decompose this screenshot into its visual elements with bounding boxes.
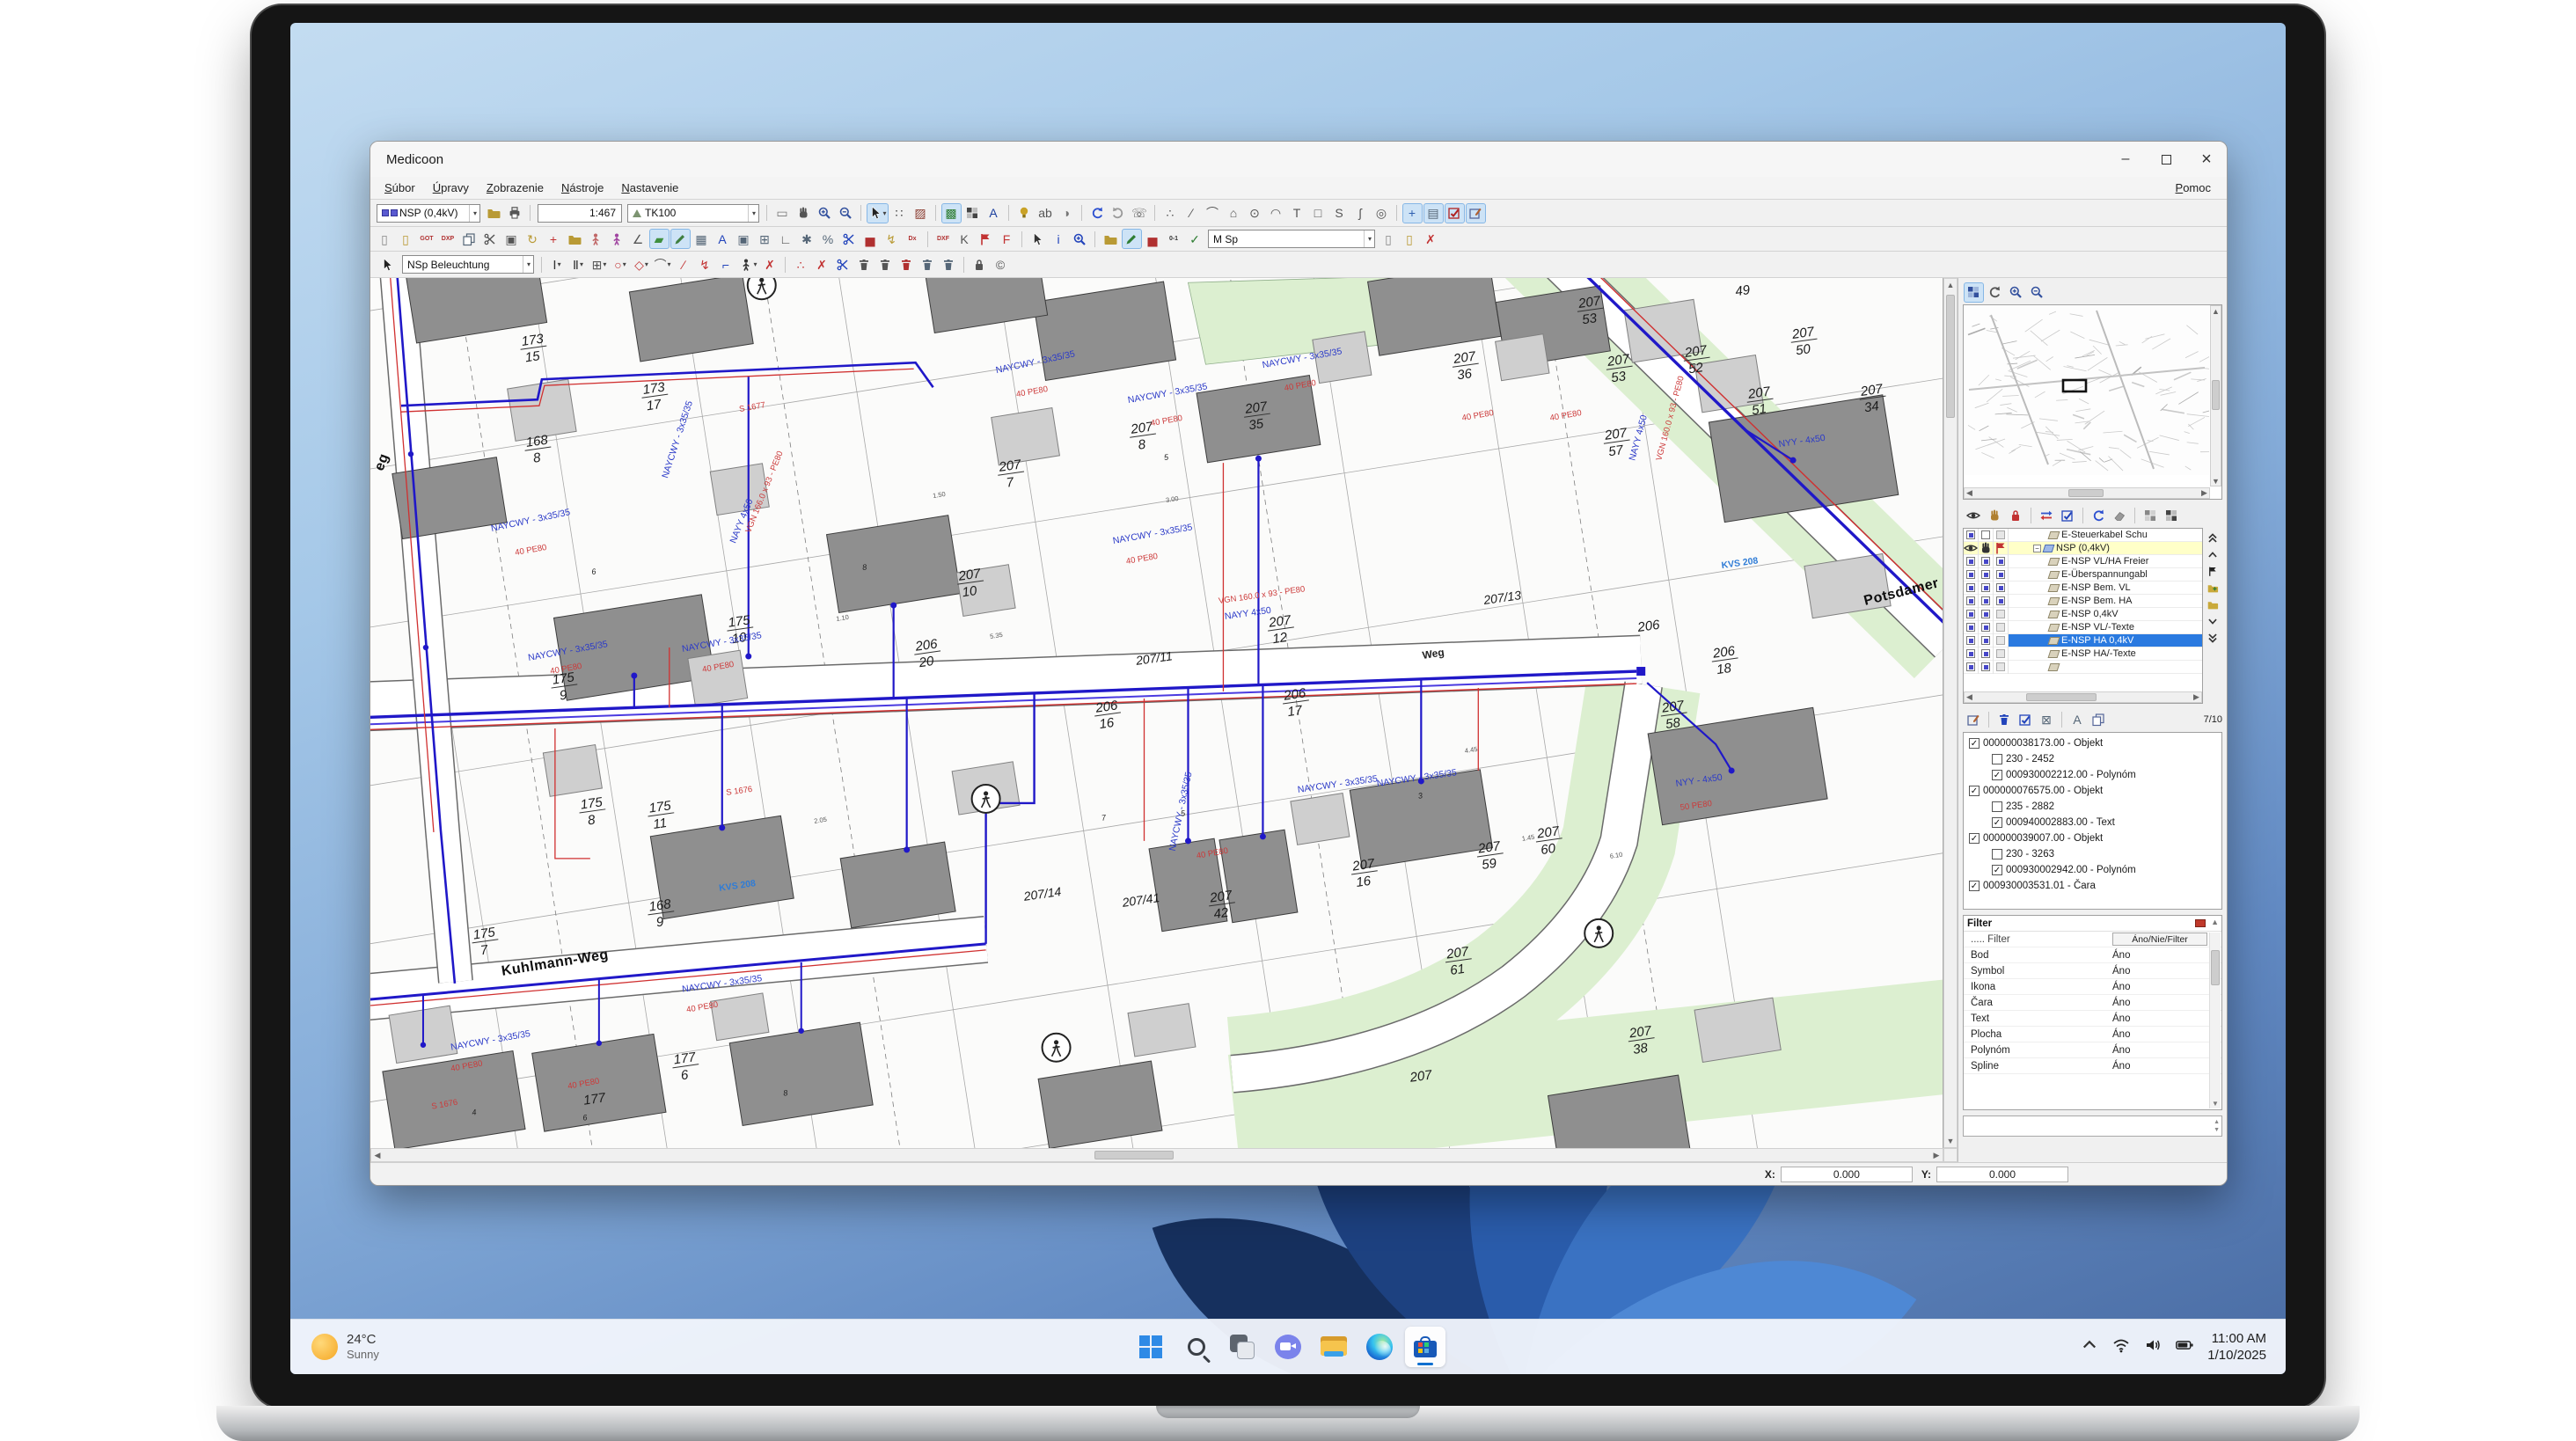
green-pen-icon[interactable] bbox=[1122, 229, 1142, 249]
props-icon[interactable] bbox=[1466, 203, 1486, 223]
unchecked-checkbox[interactable] bbox=[1992, 801, 2002, 812]
cut2-icon[interactable] bbox=[833, 254, 853, 274]
object-row[interactable]: 235 - 2882 bbox=[1965, 799, 2220, 815]
panel-footer-field[interactable]: ▲ ▼ bbox=[1963, 1115, 2222, 1137]
call-icon[interactable]: ☏ bbox=[1130, 203, 1150, 223]
layer-checkbox[interactable] bbox=[1996, 610, 2005, 618]
copyright-icon[interactable]: © bbox=[991, 254, 1011, 274]
filter-scroll-up-icon[interactable]: ▲ bbox=[2211, 918, 2219, 926]
layer-row-e-nsp-ha-0-4kv[interactable]: E-NSP HA 0,4kV bbox=[1964, 634, 2202, 647]
layer-checkbox[interactable] bbox=[1966, 636, 1975, 645]
cabinet-icon[interactable]: ⊞▾ bbox=[589, 254, 610, 274]
wifi-icon[interactable] bbox=[2112, 1336, 2130, 1358]
spinner-up-icon[interactable]: ▲ bbox=[2214, 1119, 2220, 1125]
overview-zoom-out-icon[interactable] bbox=[2027, 282, 2047, 303]
svg-text:53: 53 bbox=[1581, 311, 1599, 327]
voltage-level-select[interactable]: NSP (0,4kV)▾ bbox=[377, 204, 480, 223]
object-row[interactable]: ✓000000076575.00 - Objekt bbox=[1965, 783, 2220, 799]
menu-súbor[interactable]: Súbor bbox=[376, 179, 424, 196]
checked-checkbox[interactable]: ✓ bbox=[1969, 738, 1980, 749]
svg-text:42: 42 bbox=[1212, 905, 1230, 922]
text-blue-icon[interactable]: A bbox=[713, 229, 733, 249]
layer-checkbox[interactable] bbox=[1996, 557, 2005, 566]
pedestrian-symbol bbox=[748, 278, 776, 299]
object-row[interactable]: ✓000000039007.00 - Objekt bbox=[1965, 830, 2220, 846]
object-toolbar: ⊠A7/10 bbox=[1963, 709, 2222, 730]
new-sheet-icon[interactable]: ▯ bbox=[375, 229, 395, 249]
pan-icon[interactable] bbox=[794, 203, 814, 223]
battery-icon[interactable] bbox=[2176, 1336, 2193, 1358]
info-icon[interactable]: i bbox=[1049, 229, 1069, 249]
layer-lock-icon[interactable] bbox=[2006, 506, 2026, 526]
object-list: ✓000000038173.00 - Objekt230 - 2452✓0009… bbox=[1963, 732, 2222, 910]
maximize-button[interactable] bbox=[2146, 142, 2186, 177]
toolbar-separator bbox=[2134, 508, 2135, 523]
angle-icon[interactable]: ∠ bbox=[628, 229, 648, 249]
zoom-in-icon[interactable] bbox=[815, 203, 835, 223]
svg-text:60: 60 bbox=[1540, 841, 1557, 858]
checked-checkbox[interactable]: ✓ bbox=[1992, 770, 2002, 780]
layer-nav-flag-icon[interactable] bbox=[2205, 564, 2221, 579]
arc2-icon[interactable]: ⌒▾ bbox=[653, 254, 673, 274]
overview-toolbar bbox=[1963, 282, 2222, 303]
layer-checkbox[interactable] bbox=[1966, 557, 1975, 566]
layer-nav-strip bbox=[2203, 528, 2222, 704]
layer-nav-chev2up-icon[interactable] bbox=[2205, 530, 2221, 545]
layer-row-e-berspannungabl[interactable]: E-Überspannungabl bbox=[1964, 568, 2202, 582]
filter-close-icon[interactable] bbox=[2195, 919, 2206, 927]
toolbar-symbols: NSp Beleuchtung▾Ⅰ▾Ⅱ▾⊞▾○▾◇▾⌒▾∕↯⌐▾✗∴✗© bbox=[370, 252, 2227, 278]
red-line-icon[interactable]: ∕ bbox=[674, 254, 694, 274]
layer-row-nsp-0-4kv-[interactable]: −NSP (0,4kV) bbox=[1964, 542, 2202, 555]
tray-time: 11:00 AM bbox=[2207, 1330, 2266, 1348]
layer-undo-icon[interactable] bbox=[2089, 506, 2109, 526]
svg-text:36: 36 bbox=[1456, 366, 1474, 383]
layer-grid-b-icon[interactable] bbox=[2162, 506, 2182, 526]
object-row[interactable]: ✓000940002883.00 - Text bbox=[1965, 815, 2220, 830]
hatch-icon[interactable]: ▦ bbox=[692, 229, 712, 249]
toolbar-separator bbox=[530, 205, 531, 221]
map-hscrollbar[interactable]: ◀ ▶ bbox=[370, 1148, 1943, 1162]
clock[interactable]: 11:00 AM 1/10/2025 bbox=[2207, 1330, 2266, 1364]
spinner-down-icon[interactable]: ▼ bbox=[2214, 1127, 2220, 1133]
image-icon[interactable]: ▣ bbox=[734, 229, 754, 249]
toolbar-separator bbox=[1021, 231, 1022, 247]
filter-toggle-button[interactable]: Áno/Nie/Filter bbox=[2112, 933, 2207, 946]
layer-checkbox[interactable] bbox=[1966, 623, 1975, 632]
object-row[interactable]: 230 - 2452 bbox=[1965, 751, 2220, 767]
weather-desc: Sunny bbox=[347, 1348, 379, 1362]
title-bar[interactable]: Medicoon – × bbox=[370, 142, 2227, 177]
got-export-icon[interactable]: GOT bbox=[417, 229, 437, 249]
layer-checkbox[interactable] bbox=[1966, 570, 1975, 579]
export-icon[interactable] bbox=[565, 229, 585, 249]
y-coordinate-field[interactable]: 0.000 bbox=[1936, 1167, 2068, 1182]
taskbar-chat-icon[interactable] bbox=[1268, 1327, 1308, 1367]
overview-route-icon[interactable] bbox=[1985, 282, 2005, 303]
recycle-icon[interactable]: ↻ bbox=[523, 229, 543, 249]
layer-checkbox[interactable] bbox=[1981, 649, 1990, 658]
select-cursor-icon[interactable]: ▾ bbox=[867, 203, 889, 223]
map-vscrollbar[interactable]: ▲ ▼ bbox=[1943, 278, 1958, 1148]
svg-text:50: 50 bbox=[1795, 341, 1812, 358]
line-icon[interactable]: ∕ bbox=[1182, 203, 1202, 223]
svg-text:10: 10 bbox=[962, 583, 979, 600]
copy-icon[interactable] bbox=[459, 229, 479, 249]
layer-checkbox[interactable] bbox=[1981, 662, 1990, 671]
red-x-icon[interactable]: ✗ bbox=[812, 254, 832, 274]
layer-checkbox[interactable] bbox=[1996, 636, 2005, 645]
toolbar-separator bbox=[785, 257, 786, 273]
overview-vscroll[interactable]: ▲ ▼ bbox=[2210, 305, 2221, 486]
svg-text:34: 34 bbox=[1863, 399, 1880, 415]
overview-map[interactable]: ▲ ▼ ◀ ▶ bbox=[1963, 304, 2222, 500]
toolbar-separator bbox=[1154, 205, 1155, 221]
filter-row-text[interactable]: TextÁno bbox=[1964, 1011, 2221, 1027]
red-diamond-icon[interactable]: ◇▾ bbox=[632, 254, 652, 274]
person2-icon[interactable] bbox=[607, 229, 627, 249]
dxf-chip-icon[interactable]: DXF bbox=[933, 229, 954, 249]
taskbar-start-icon[interactable] bbox=[1131, 1327, 1171, 1367]
layer-swap-icon[interactable] bbox=[2037, 506, 2057, 526]
scurve-icon[interactable]: S bbox=[1329, 203, 1350, 223]
chart2-icon[interactable]: ▅ bbox=[1143, 229, 1163, 249]
window-title: Medicoon bbox=[370, 152, 443, 167]
system-tray: 11:00 AM 1/10/2025 bbox=[2081, 1330, 2266, 1364]
f-icon[interactable]: F bbox=[997, 229, 1017, 249]
blue-elbow-icon[interactable]: ⌐ bbox=[716, 254, 736, 274]
laptop-base-notch bbox=[1156, 1406, 1420, 1418]
filter-row-polynóm[interactable]: PolynómÁno bbox=[1964, 1042, 2221, 1058]
side-panel: ▲ ▼ ◀ ▶ E-Steuerkabel Schu−NSP (0,4kV)E-… bbox=[1958, 278, 2227, 1162]
percent-icon[interactable]: % bbox=[818, 229, 838, 249]
tree-hscroll[interactable]: ◀ ▶ bbox=[1964, 691, 2202, 703]
layer-checkbox[interactable] bbox=[1981, 557, 1990, 566]
background-map-select[interactable]: TK100▾ bbox=[627, 204, 759, 223]
object-row[interactable]: ✓000930002212.00 - Polynóm bbox=[1965, 767, 2220, 783]
menu-nastavenie[interactable]: Nastavenie bbox=[612, 179, 687, 196]
layer-checkbox[interactable] bbox=[1996, 649, 2005, 658]
layer-checkbox[interactable] bbox=[1981, 530, 1990, 539]
cut-icon[interactable] bbox=[480, 229, 501, 249]
pen-icon[interactable] bbox=[670, 229, 691, 249]
layer-row-e-steuerkabel-schu[interactable]: E-Steuerkabel Schu bbox=[1964, 529, 2202, 542]
filter-header: ..... Filter Áno/Nie/Filter bbox=[1964, 932, 2221, 947]
zoom-out-icon[interactable] bbox=[836, 203, 856, 223]
filter-panel: Filter ▲ ..... Filter Áno/Nie/Filter Bod… bbox=[1963, 915, 2222, 1110]
menu-pomoc[interactable]: Pomoc bbox=[2165, 179, 2221, 196]
spline-icon[interactable]: ʃ bbox=[1350, 203, 1371, 223]
layer-checkbox[interactable] bbox=[1996, 570, 2005, 579]
object-sort-icon[interactable]: A bbox=[2067, 710, 2088, 730]
layer-checkbox[interactable] bbox=[1981, 636, 1990, 645]
trash-grid-icon[interactable] bbox=[896, 254, 917, 274]
layer-checkbox[interactable] bbox=[1996, 596, 2005, 605]
object-delete-icon[interactable] bbox=[1994, 710, 2015, 730]
layer-checkbox[interactable] bbox=[1966, 583, 1975, 592]
object-deselect-icon[interactable]: ⊠ bbox=[2037, 710, 2057, 730]
layer-checkbox[interactable] bbox=[1996, 662, 2005, 671]
toolbar-separator bbox=[2031, 508, 2031, 523]
polygon-icon[interactable]: ⌂ bbox=[1224, 203, 1244, 223]
layer-checkbox[interactable] bbox=[1996, 623, 2005, 632]
layer-grid-a-icon[interactable] bbox=[2141, 506, 2161, 526]
undo-icon[interactable] bbox=[1087, 203, 1108, 223]
filter-row-čara[interactable]: ČaraÁno bbox=[1964, 995, 2221, 1011]
toolbar-separator bbox=[1094, 231, 1095, 247]
abs-icon[interactable]: ab bbox=[1036, 203, 1056, 223]
light-icon[interactable] bbox=[1014, 203, 1035, 223]
gear-icon[interactable]: ✱ bbox=[797, 229, 817, 249]
toolbar-separator bbox=[541, 257, 542, 273]
select-points-icon[interactable]: ∷ bbox=[889, 203, 910, 223]
layer-colors-icon[interactable]: ▩ bbox=[941, 203, 962, 223]
filter-row-bod[interactable]: BodÁno bbox=[1964, 947, 2221, 963]
svg-text:53: 53 bbox=[1610, 369, 1628, 385]
paste-icon[interactable]: ▣ bbox=[501, 229, 522, 249]
layer-visibility-icon[interactable] bbox=[1964, 506, 1984, 526]
chart-icon[interactable]: ▅ bbox=[860, 229, 881, 249]
sheet-b-icon[interactable]: ▯ bbox=[1400, 229, 1420, 249]
verify-icon[interactable] bbox=[1445, 203, 1465, 223]
trash-box-icon[interactable] bbox=[918, 254, 938, 274]
layer-checkbox[interactable] bbox=[1966, 662, 1975, 671]
layer-row-e-nsp-vl-texte[interactable]: E-NSP VL/-Texte bbox=[1964, 621, 2202, 634]
layer-checkbox[interactable] bbox=[1966, 610, 1975, 618]
toolbar-separator bbox=[1396, 205, 1397, 221]
layer-checkbox[interactable] bbox=[1981, 596, 1990, 605]
toolbar-main: NSP (0,4kV)▾1:467TK100▾▭▾∷▨▩Aab◑☏∴∕⌒⌂⊙◠T… bbox=[370, 200, 2227, 227]
object-row[interactable]: ✓000000038173.00 - Objekt bbox=[1965, 735, 2220, 751]
object-row[interactable]: 230 - 3263 bbox=[1965, 846, 2220, 862]
taskbar-file-explorer-icon[interactable] bbox=[1314, 1327, 1354, 1367]
checked-checkbox[interactable]: ✓ bbox=[1992, 817, 2002, 828]
svg-text:17: 17 bbox=[646, 397, 663, 413]
overview-pages-icon[interactable] bbox=[1964, 282, 1984, 303]
flag-icon[interactable] bbox=[976, 229, 996, 249]
new-view-icon[interactable]: ▭ bbox=[772, 203, 793, 223]
scale-input[interactable]: 1:467 bbox=[538, 204, 622, 223]
checked-checkbox[interactable]: ✓ bbox=[1969, 786, 1980, 796]
k-icon[interactable]: K bbox=[955, 229, 975, 249]
red-zigzag-icon[interactable]: ↯ bbox=[695, 254, 715, 274]
zero-one-icon[interactable]: 0-1 bbox=[1164, 229, 1184, 249]
layer-row-e-nsp-bem-ha[interactable]: E-NSP Bem. HA bbox=[1964, 595, 2202, 608]
svg-text:38: 38 bbox=[1632, 1041, 1650, 1057]
fill-icon[interactable]: ▰ bbox=[649, 229, 670, 249]
arc-icon[interactable]: ◠ bbox=[1266, 203, 1286, 223]
pole2-icon[interactable]: Ⅱ▾ bbox=[568, 254, 589, 274]
snip-icon[interactable] bbox=[839, 229, 860, 249]
layer-checkbox[interactable] bbox=[1966, 649, 1975, 658]
filter-row-spline[interactable]: SplineÁno bbox=[1964, 1058, 2221, 1074]
layer-nav-chev2down-icon[interactable] bbox=[2205, 631, 2221, 646]
toolbar-separator bbox=[860, 205, 861, 221]
unchecked-checkbox[interactable] bbox=[1992, 849, 2002, 859]
taskbar-apps bbox=[1131, 1327, 1445, 1367]
svg-text:52: 52 bbox=[1687, 360, 1705, 377]
red-circle-icon[interactable]: ○▾ bbox=[611, 254, 631, 274]
redo-icon[interactable] bbox=[1109, 203, 1129, 223]
layer-toolbar bbox=[1963, 505, 2222, 526]
layer-row-e-nsp-ha-texte[interactable]: E-NSP HA/-Texte bbox=[1964, 647, 2202, 661]
checked-checkbox[interactable]: ✓ bbox=[1969, 833, 1980, 844]
svg-text:59: 59 bbox=[1481, 856, 1498, 873]
layer-row-e-nsp-0-4kv[interactable]: E-NSP 0,4kV bbox=[1964, 608, 2202, 621]
svg-text:57: 57 bbox=[1607, 443, 1625, 459]
pole-icon[interactable]: Ⅰ▾ bbox=[547, 254, 567, 274]
folder2-icon[interactable] bbox=[1101, 229, 1121, 249]
symbol-group-select[interactable]: NSp Beleuchtung▾ bbox=[402, 255, 534, 274]
lock-icon[interactable] bbox=[970, 254, 990, 274]
person-icon[interactable] bbox=[586, 229, 606, 249]
table-icon[interactable]: ⊞ bbox=[755, 229, 775, 249]
object-copy-icon[interactable] bbox=[2089, 710, 2109, 730]
taskbar-edge-icon[interactable] bbox=[1359, 1327, 1400, 1367]
toolbar-separator bbox=[1081, 205, 1082, 221]
pick-icon[interactable] bbox=[1028, 229, 1048, 249]
text-icon[interactable]: T bbox=[1287, 203, 1307, 223]
map-canvas[interactable]: 1731517317168817510175917571689175817511… bbox=[370, 278, 1943, 1150]
layer-checkbox[interactable] bbox=[1981, 623, 1990, 632]
checked-checkbox[interactable]: ✓ bbox=[1992, 865, 2002, 875]
toolbar-separator bbox=[1008, 205, 1009, 221]
layer-checkbox[interactable] bbox=[1996, 530, 2005, 539]
menu-zobrazenie[interactable]: Zobrazenie bbox=[478, 179, 553, 196]
polyline-icon[interactable]: ⌒ bbox=[1203, 203, 1223, 223]
pedestrian-symbol bbox=[1584, 919, 1613, 947]
toolbar-separator bbox=[927, 231, 928, 247]
text-display-icon[interactable]: A bbox=[984, 203, 1004, 223]
svg-text:12: 12 bbox=[1271, 630, 1289, 647]
measure-icon[interactable]: ∟ bbox=[776, 229, 796, 249]
layer-row-e-nsp-vl-ha-freier[interactable]: E-NSP VL/HA Freier bbox=[1964, 555, 2202, 568]
layer-checkbox[interactable] bbox=[1981, 583, 1990, 592]
trash-box2-icon[interactable] bbox=[939, 254, 959, 274]
red-dots-icon[interactable]: ∴ bbox=[791, 254, 811, 274]
layer-checkbox[interactable] bbox=[1981, 570, 1990, 579]
layer-nav-chevup-icon[interactable] bbox=[2205, 547, 2221, 562]
red-burst-icon[interactable]: ✗ bbox=[760, 254, 780, 274]
layer-row[interactable] bbox=[1964, 661, 2202, 674]
select-area-icon[interactable]: ▨ bbox=[911, 203, 931, 223]
dx-chip-icon[interactable]: Dx bbox=[903, 229, 923, 249]
layer-checkbox[interactable] bbox=[1966, 530, 1975, 539]
weather-temp: 24°C bbox=[347, 1332, 379, 1348]
object-checkedit-icon[interactable] bbox=[2016, 710, 2036, 730]
query-icon[interactable] bbox=[1070, 229, 1090, 249]
object-row[interactable]: ✓000930002942.00 - Polynóm bbox=[1965, 862, 2220, 878]
toolbar-edit: ▯▯GOTDXP▣↻+∠▰▦A▣⊞∟✱%▅↯DxDXFKFi▅0-1✓M Sp▾… bbox=[370, 227, 2227, 252]
svg-text:20: 20 bbox=[918, 654, 936, 670]
pointer-icon[interactable] bbox=[375, 253, 399, 276]
layer-pan-icon[interactable] bbox=[1985, 506, 2005, 526]
filter-title: Filter bbox=[1967, 918, 1992, 929]
filter-row-ikona[interactable]: IkonaÁno bbox=[1964, 979, 2221, 995]
minimize-button[interactable]: – bbox=[2105, 142, 2146, 177]
bolt-icon[interactable]: ↯ bbox=[882, 229, 902, 249]
layer-tree: E-Steuerkabel Schu−NSP (0,4kV)E-NSP VL/H… bbox=[1963, 528, 2203, 704]
pin-icon[interactable]: ◎ bbox=[1372, 203, 1392, 223]
overview-hscroll[interactable]: ◀ ▶ bbox=[1964, 487, 2210, 499]
x-coordinate-field[interactable]: 0.000 bbox=[1781, 1167, 1913, 1182]
overview-zoom-in-icon[interactable] bbox=[2006, 282, 2026, 303]
trash-dot-icon[interactable] bbox=[875, 254, 896, 274]
svg-text:17: 17 bbox=[1286, 703, 1304, 720]
layer-nav-folder-icon[interactable] bbox=[2205, 597, 2221, 612]
import-icon[interactable]: + bbox=[544, 229, 564, 249]
weather-widget[interactable]: 24°C Sunny bbox=[311, 1332, 379, 1362]
x-label: X: bbox=[1765, 1168, 1775, 1181]
layer-checkbox[interactable] bbox=[1996, 583, 2005, 592]
taskbar-store-icon[interactable] bbox=[1405, 1327, 1445, 1367]
point-icon[interactable]: ∴ bbox=[1160, 203, 1181, 223]
circle-icon[interactable]: ⊙ bbox=[1245, 203, 1265, 223]
layer-nav-folderplus-icon[interactable] bbox=[2205, 581, 2221, 596]
app-window: Medicoon – × SúborÚpravyZobrazenieNástro… bbox=[370, 141, 2228, 1186]
svg-text:51: 51 bbox=[1751, 401, 1767, 418]
block-icon[interactable]: ▤ bbox=[1423, 203, 1444, 223]
object-row[interactable]: ✓000930003531.01 - Čara bbox=[1965, 878, 2220, 894]
delete-red-icon[interactable]: ✗ bbox=[1421, 229, 1441, 249]
taskbar: 24°C Sunny 11:00 AM 1/10/2025 bbox=[290, 1319, 2286, 1374]
open-icon[interactable] bbox=[484, 203, 504, 223]
dxp-export-icon[interactable]: DXP bbox=[438, 229, 458, 249]
open-sheet-icon[interactable]: ▯ bbox=[396, 229, 416, 249]
map-area: 1731517317168817510175917571689175817511… bbox=[370, 278, 1958, 1162]
taskbar-search-icon[interactable] bbox=[1176, 1327, 1217, 1367]
menu-bar: SúborÚpravyZobrazenieNástrojeNastavenieP… bbox=[370, 177, 2227, 200]
svg-text:15: 15 bbox=[524, 348, 542, 365]
map-scroll-corner bbox=[1943, 1148, 1958, 1162]
checked-checkbox[interactable]: ✓ bbox=[1969, 881, 1980, 891]
object-props-icon[interactable] bbox=[1964, 710, 1984, 730]
sheet-a-icon[interactable]: ▯ bbox=[1379, 229, 1399, 249]
filter-vscroll[interactable]: ▼ bbox=[2209, 933, 2221, 1108]
person3-icon[interactable]: ▾ bbox=[737, 254, 759, 274]
laptop-base bbox=[216, 1406, 2360, 1441]
style-select[interactable]: M Sp▾ bbox=[1208, 230, 1375, 248]
menu-úpravy[interactable]: Úpravy bbox=[424, 179, 478, 196]
check-icon[interactable]: ✓ bbox=[1185, 229, 1205, 249]
svg-text:49: 49 bbox=[1734, 282, 1752, 299]
print-icon[interactable] bbox=[505, 203, 525, 223]
pedestrian-symbol bbox=[972, 785, 1000, 813]
toggle-icon[interactable]: ◑ bbox=[1057, 203, 1077, 223]
unchecked-checkbox[interactable] bbox=[1992, 754, 2002, 764]
svg-text:16: 16 bbox=[1355, 874, 1372, 890]
taskbar-task-view-icon[interactable] bbox=[1222, 1327, 1262, 1367]
tray-chevron-icon[interactable] bbox=[2081, 1336, 2098, 1358]
move-icon[interactable]: + bbox=[1402, 203, 1423, 223]
close-button[interactable]: × bbox=[2186, 142, 2227, 177]
trash-icon[interactable] bbox=[854, 254, 875, 274]
rect-icon[interactable]: □ bbox=[1308, 203, 1328, 223]
layer-row-e-nsp-bem-vl[interactable]: E-NSP Bem. VL bbox=[1964, 582, 2202, 595]
menu-nástroje[interactable]: Nástroje bbox=[553, 179, 612, 196]
svg-text:16: 16 bbox=[1098, 715, 1116, 732]
filter-row-symbol[interactable]: SymbolÁno bbox=[1964, 963, 2221, 979]
layer-checkbox[interactable] bbox=[1966, 596, 1975, 605]
checker-icon[interactable] bbox=[962, 203, 983, 223]
status-bar: X: 0.000 Y: 0.000 bbox=[370, 1162, 2227, 1185]
layer-checkedit-icon[interactable] bbox=[2058, 506, 2078, 526]
layer-nav-chevdown-icon[interactable] bbox=[2205, 614, 2221, 629]
layer-checkbox[interactable] bbox=[1981, 610, 1990, 618]
filter-row-plocha[interactable]: PlochaÁno bbox=[1964, 1027, 2221, 1042]
volume-icon[interactable] bbox=[2144, 1336, 2162, 1358]
layer-eraser-icon[interactable] bbox=[2110, 506, 2130, 526]
